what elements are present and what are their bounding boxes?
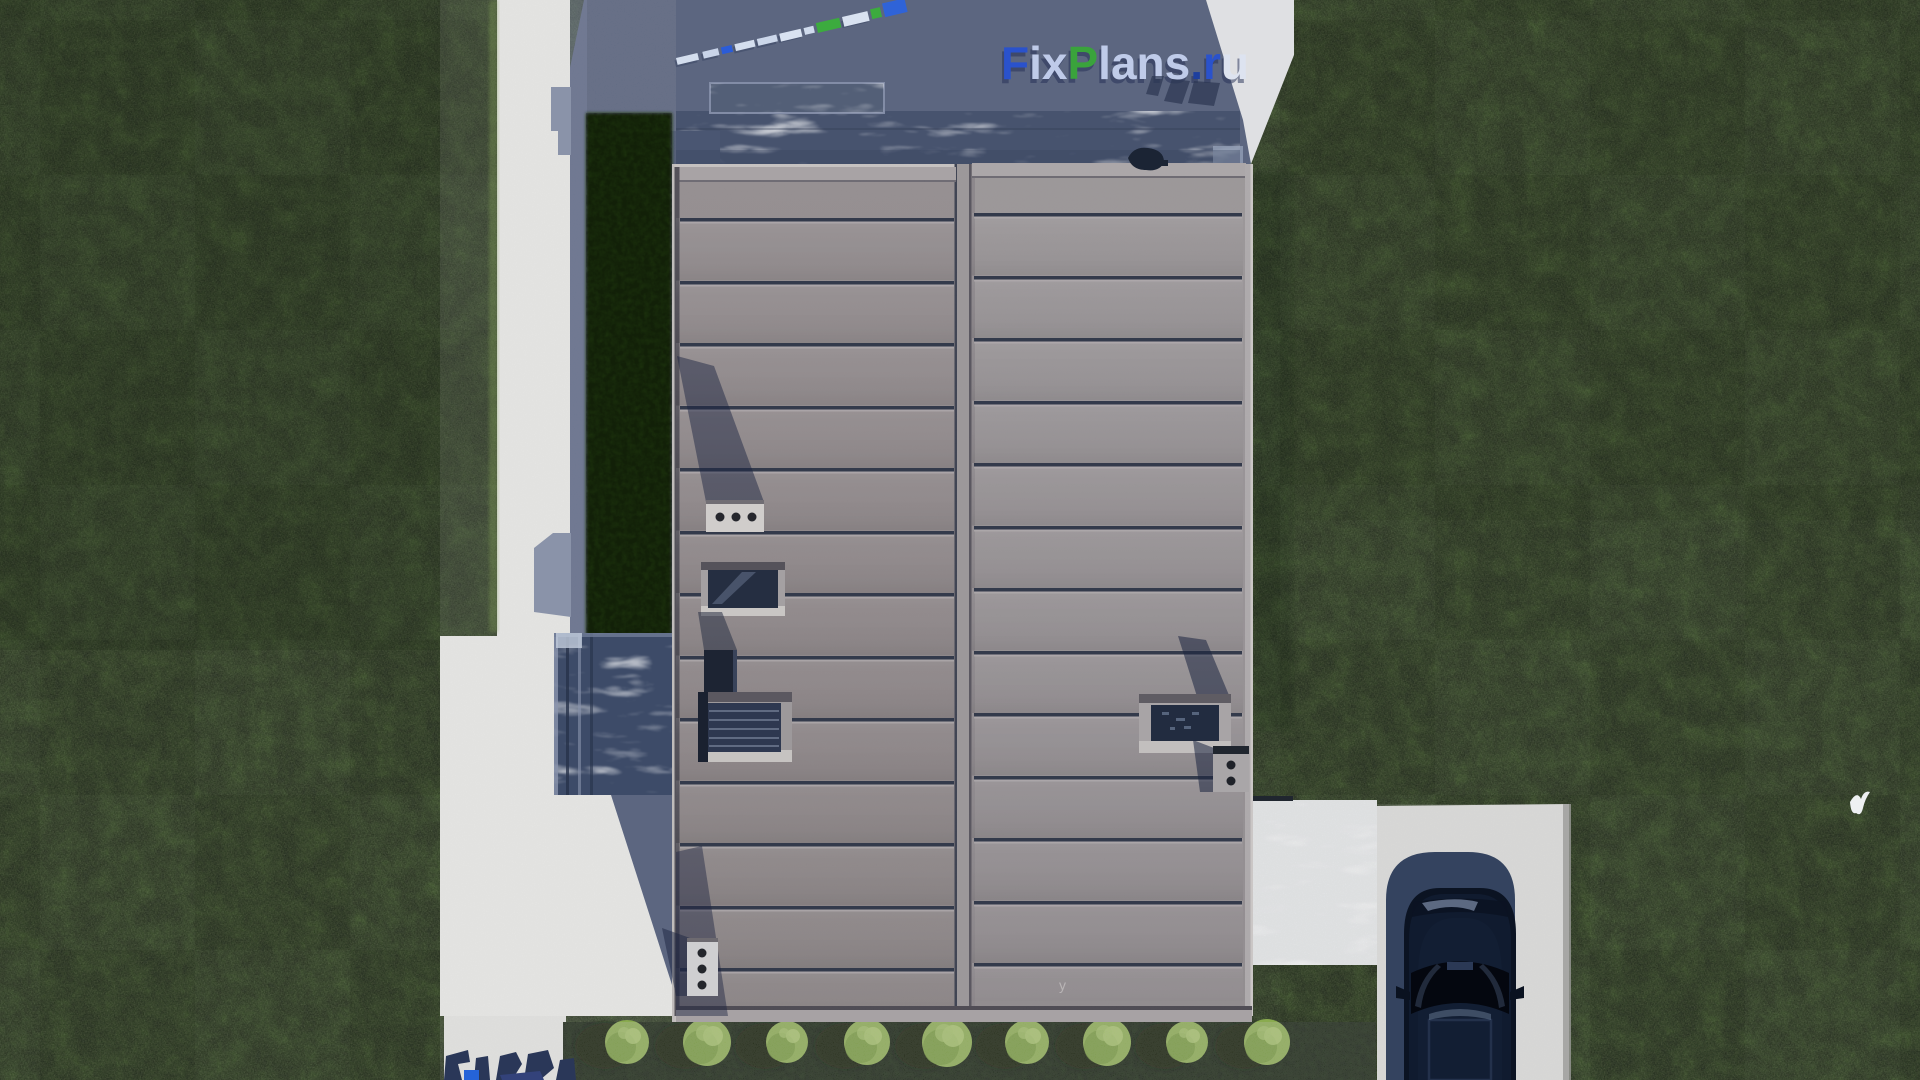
svg-text:FixPlans.ru: FixPlans.ru — [1001, 37, 1249, 89]
svg-text:y: y — [1059, 977, 1066, 993]
